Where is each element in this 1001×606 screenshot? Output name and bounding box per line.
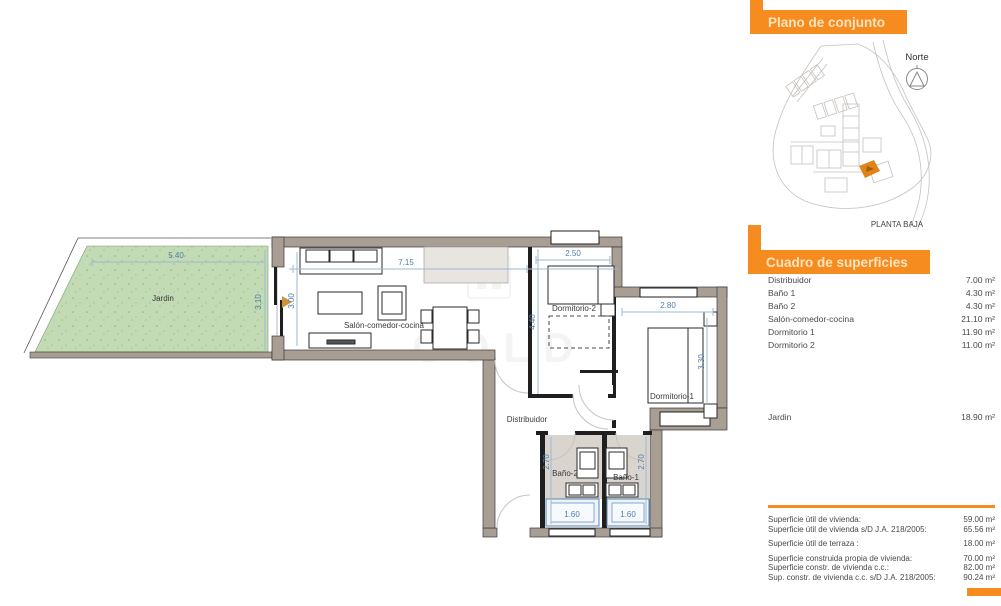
area-value: 18.90 m² [961, 411, 995, 424]
areas-header-corner [748, 225, 761, 250]
summary-label: Superficie útil de vivienda s/D J.A. 218… [768, 525, 927, 535]
area-value: 11.90 m² [962, 326, 995, 339]
summary-row: Sup. constr. de vivienda c.c. s/D J.A. 2… [768, 573, 995, 583]
dim-garden-depth: 3.10 [254, 294, 263, 310]
table-row: Salón-comedor-cocina 21.10 m² [768, 313, 995, 326]
nightstand [601, 304, 615, 316]
summary-label: Superficie constr. de vivienda c.c.: [768, 563, 889, 573]
garden-label: Jardin [152, 294, 174, 303]
area-label: Dormitorio 2 [768, 339, 815, 352]
dim-bath2-depth: 2.70 [542, 454, 551, 470]
summary-row: Superficie construida propia de vivienda… [768, 554, 995, 564]
summary-rule [768, 505, 995, 508]
area-value: 11.00 m² [962, 339, 995, 352]
highlighted-unit [859, 160, 880, 178]
window-bath2 [549, 529, 595, 536]
garden-area-row: Jardin 18.90 m² [768, 411, 995, 424]
chair [468, 330, 479, 343]
dim-living-width: 7.15 [398, 258, 414, 267]
summary-value: 59.00 m² [963, 515, 995, 525]
summary-label: Superficie útil de vivienda: [768, 515, 861, 525]
bedroom1-label: Dormitorio-1 [650, 392, 695, 401]
footer-accent-bar [967, 588, 1001, 596]
dim-bathtub1-width: 1.60 [620, 510, 636, 519]
area-label: Baño 2 [768, 300, 795, 313]
area-label: Baño 1 [768, 287, 795, 300]
table-row: Dormitorio 1 11.90 m² [768, 326, 995, 339]
north-compass-icon [907, 65, 928, 90]
nightstand [704, 404, 717, 418]
area-label: Salón-comedor-cocina [768, 313, 854, 326]
bath2-label: Baño-2 [552, 469, 578, 478]
area-value: 4.30 m² [966, 287, 995, 300]
bedroom1-door-arc [579, 385, 614, 420]
nightstand [704, 312, 717, 326]
summary-row: Superficie constr. de vivienda c.c.: 82.… [768, 563, 995, 573]
window-bedroom1 [640, 288, 697, 297]
dim-bedroom2-depth: 4.40 [528, 314, 537, 330]
site-map: Norte PLANTA BAJA [763, 38, 1001, 236]
summary-row: Superficie útil de terraza : 18.00 m² [768, 539, 995, 549]
map-header: Plano de conjunto [750, 10, 907, 34]
area-value: 7.00 m² [966, 274, 995, 287]
entry-door-arc [497, 495, 530, 528]
map-header-corner [750, 0, 763, 10]
bath1-label: Baño-1 [613, 473, 639, 482]
table-row: Baño 2 4.30 m² [768, 300, 995, 313]
summary-value: 82.00 m² [963, 563, 995, 573]
summary-value: 90.24 m² [963, 573, 995, 583]
areas-table: Distribuidor 7.00 m² Baño 1 4.30 m² Baño… [768, 274, 995, 352]
dim-bath1-depth: 2.70 [637, 454, 646, 470]
table-row: Baño 1 4.30 m² [768, 287, 995, 300]
level-label: PLANTA BAJA [871, 220, 924, 229]
chair [421, 330, 432, 343]
dim-garden-width: 5.40 [168, 251, 184, 260]
summary-value: 18.00 m² [963, 539, 995, 549]
bed-2 [548, 266, 614, 304]
table-row: Distribuidor 7.00 m² [768, 274, 995, 287]
coffee-table [318, 292, 362, 314]
chair [468, 310, 479, 323]
dim-living-depth: 3.00 [287, 293, 296, 309]
window-bedroom2 [551, 231, 599, 244]
kitchen-counter [424, 247, 508, 283]
area-label: Dormitorio 1 [768, 326, 815, 339]
dim-bedroom1-width: 2.80 [660, 301, 676, 310]
window-bath1 [610, 529, 650, 536]
bedroom2-label: Dormitorio-2 [552, 304, 597, 313]
table-row: Dormitorio 2 11.00 m² [768, 339, 995, 352]
floor-plan: COLD Jardin [0, 0, 745, 606]
area-value: 4.30 m² [966, 300, 995, 313]
living-label: Salón-comedor-cocina [344, 321, 425, 330]
site-map-drawing [773, 40, 931, 230]
dining-table [433, 307, 467, 349]
summary-label: Superficie útil de terraza : [768, 539, 859, 549]
areas-header: Cuadro de superficies [748, 250, 930, 274]
sliding-door [274, 267, 283, 336]
summary-value: 70.00 m² [963, 554, 995, 564]
table-row: Jardin 18.90 m² [768, 411, 995, 424]
summary-block: Superficie útil de vivienda: 59.00 m² Su… [768, 515, 995, 587]
summary-value: 65.56 m² [963, 525, 995, 535]
summary-label: Sup. constr. de vivienda c.c. s/D J.A. 2… [768, 573, 936, 583]
dim-bathtub2-width: 1.60 [564, 510, 580, 519]
area-label: Jardin [768, 411, 791, 424]
garden-retaining-wall [30, 352, 272, 358]
summary-row: Superficie útil de vivienda: 59.00 m² [768, 515, 995, 525]
window-rear [660, 412, 710, 426]
hall-label: Distribuidor [507, 415, 548, 424]
summary-label: Superficie construida propia de vivienda… [768, 554, 912, 564]
summary-row: Superficie útil de vivienda s/D J.A. 218… [768, 525, 995, 535]
north-label: Norte [905, 52, 928, 63]
area-label: Distribuidor [768, 274, 811, 287]
dim-bedroom1-depth: 3.30 [697, 354, 706, 370]
dim-bedroom2-width: 2.50 [565, 249, 581, 258]
area-value: 21.10 m² [961, 313, 995, 326]
